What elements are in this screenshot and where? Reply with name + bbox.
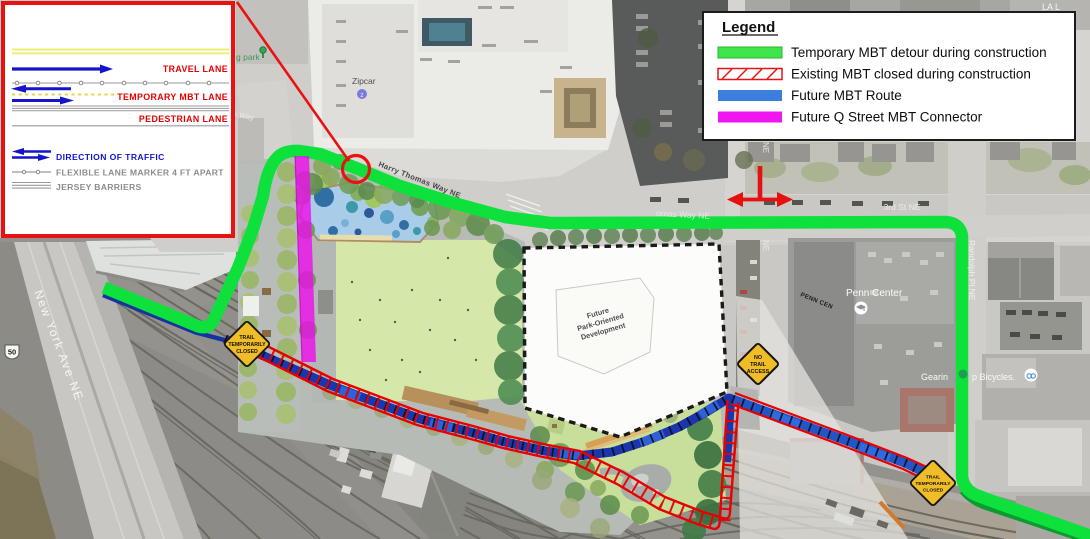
- svg-text:TEMPORARILY: TEMPORARILY: [915, 481, 951, 487]
- svg-text:NE: NE: [761, 240, 770, 251]
- svg-text:TEMPORARY MBT LANE: TEMPORARY MBT LANE: [117, 92, 228, 102]
- svg-text:NE: NE: [761, 142, 770, 153]
- svg-text:Zipcar: Zipcar: [352, 76, 376, 86]
- svg-text:50: 50: [8, 348, 16, 357]
- svg-text:Gearin: Gearin: [921, 372, 948, 382]
- svg-text:p Bicycles.: p Bicycles.: [972, 372, 1015, 382]
- svg-text:TRAIL: TRAIL: [926, 475, 940, 481]
- svg-text:TRAIL: TRAIL: [239, 335, 255, 341]
- svg-text:Existing MBT closed during con: Existing MBT closed during construction: [791, 67, 1031, 82]
- svg-text:ACCESS: ACCESS: [747, 369, 770, 375]
- svg-text:z: z: [361, 93, 364, 99]
- svg-text:TRAIL: TRAIL: [750, 362, 767, 368]
- svg-text:JERSEY BARRIERS: JERSEY BARRIERS: [56, 182, 142, 192]
- svg-text:Future Q Street MBT Connector: Future Q Street MBT Connector: [791, 110, 983, 125]
- svg-text:FLEXIBLE LANE MARKER 4 FT APAR: FLEXIBLE LANE MARKER 4 FT APART: [56, 168, 224, 178]
- svg-text:Randolph Pl NE: Randolph Pl NE: [967, 240, 977, 301]
- svg-text:DIRECTION OF TRAFFIC: DIRECTION OF TRAFFIC: [56, 152, 165, 162]
- svg-text:CLOSED: CLOSED: [236, 349, 258, 355]
- svg-text:g park: g park: [236, 52, 260, 62]
- svg-text:TRAVEL LANE: TRAVEL LANE: [163, 64, 228, 74]
- svg-text:PEDESTRIAN LANE: PEDESTRIAN LANE: [139, 114, 228, 124]
- svg-text:3rd St NE: 3rd St NE: [884, 202, 921, 212]
- svg-text:Future MBT Route: Future MBT Route: [791, 88, 902, 103]
- svg-text:Legend: Legend: [722, 19, 775, 36]
- svg-text:Temporary MBT detour during co: Temporary MBT detour during construction: [791, 45, 1047, 60]
- svg-text:NO: NO: [754, 355, 762, 361]
- svg-text:LA L: LA L: [1042, 2, 1060, 12]
- svg-text:CLOSED: CLOSED: [923, 488, 944, 494]
- svg-text:TEMPORARILY: TEMPORARILY: [228, 342, 266, 348]
- svg-text:Penn Center: Penn Center: [846, 288, 903, 299]
